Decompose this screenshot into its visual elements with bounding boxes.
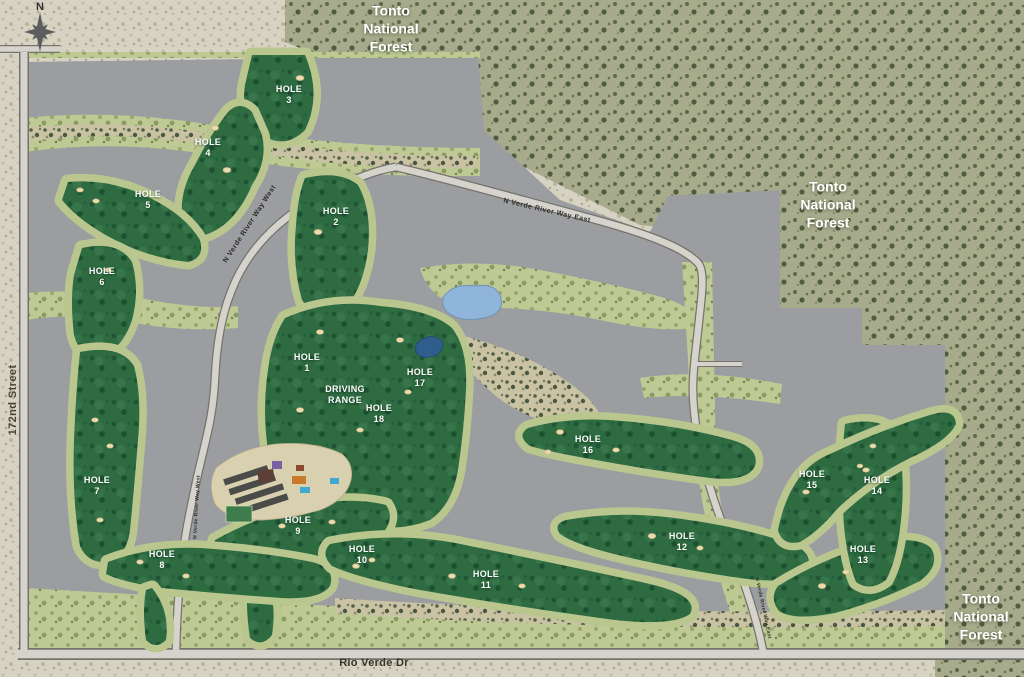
hole-15-label: HOLE15 bbox=[799, 469, 825, 492]
hole-18-label: HOLE18 bbox=[366, 403, 392, 426]
street-label-rio-verde: Rio Verde Dr bbox=[339, 657, 409, 669]
hole-1-label: HOLE1 bbox=[294, 352, 320, 375]
compass-north-label: N bbox=[36, 1, 44, 13]
hole-2-label: HOLE2 bbox=[323, 206, 349, 229]
road-label-verde-east-small: N Verde River Way East bbox=[754, 577, 773, 639]
forest-label-southeast: Tonto National Forest bbox=[953, 590, 1008, 645]
hole-10-label: HOLE10 bbox=[349, 544, 375, 567]
hole-6-label: HOLE6 bbox=[89, 266, 115, 289]
road-label-verde-west: N Verde River Way West bbox=[222, 184, 278, 264]
hole-3-label: HOLE3 bbox=[276, 84, 302, 107]
hole-5-label: HOLE5 bbox=[135, 189, 161, 212]
golf-community-site-map: N Tonto National Forest Tonto National F… bbox=[0, 0, 1024, 677]
hole-17-label: HOLE17 bbox=[407, 367, 433, 390]
hole-7-label: HOLE7 bbox=[84, 475, 110, 498]
road-label-verde-east: N Verde River Way East bbox=[503, 198, 592, 225]
driving-range-label: DRIVING RANGE bbox=[325, 384, 365, 407]
hole-9-label: HOLE9 bbox=[285, 515, 311, 538]
road-label-verde-west-small: N Verde River Way West bbox=[192, 475, 201, 539]
forest-label-top: Tonto National Forest bbox=[363, 2, 418, 57]
hole-8-label: HOLE8 bbox=[149, 549, 175, 572]
hole-11-label: HOLE11 bbox=[473, 569, 499, 592]
hole-13-label: HOLE13 bbox=[850, 544, 876, 567]
street-label-172nd: 172nd Street bbox=[7, 365, 19, 436]
label-layer: N Tonto National Forest Tonto National F… bbox=[0, 0, 1024, 677]
hole-16-label: HOLE16 bbox=[575, 434, 601, 457]
forest-label-east: Tonto National Forest bbox=[800, 178, 855, 233]
hole-4-label: HOLE4 bbox=[195, 137, 221, 160]
hole-12-label: HOLE12 bbox=[669, 531, 695, 554]
hole-14-label: HOLE14 bbox=[864, 475, 890, 498]
